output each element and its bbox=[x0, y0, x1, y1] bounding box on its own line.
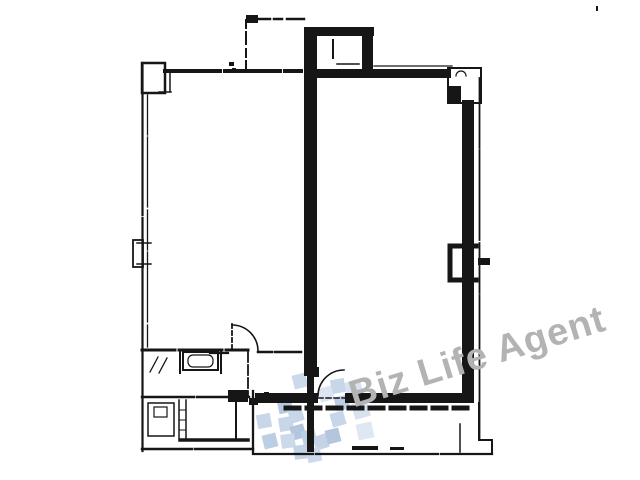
scan-speck bbox=[352, 446, 378, 450]
floor-plan-drawing bbox=[0, 0, 640, 480]
wall-stub bbox=[264, 392, 269, 403]
pilaster-arc bbox=[456, 71, 466, 76]
wall-block bbox=[228, 390, 248, 402]
wall-tick bbox=[478, 258, 490, 265]
toilet-room bbox=[148, 403, 174, 436]
floor-plan-page: Biz Life Agent bbox=[0, 0, 640, 480]
bath-pocket-wall bbox=[179, 400, 186, 438]
center-wall-lower bbox=[307, 376, 314, 452]
balcony-right-step bbox=[479, 403, 492, 454]
scan-speck bbox=[232, 68, 236, 71]
fixture-hatch bbox=[150, 357, 167, 373]
toilet-tank bbox=[154, 407, 167, 417]
wall-stub bbox=[307, 367, 319, 377]
door-arc bbox=[232, 325, 258, 351]
wall-stub bbox=[249, 398, 258, 405]
scan-speck bbox=[229, 62, 234, 66]
wall-corner-post bbox=[142, 63, 165, 93]
center-bearing-wall bbox=[304, 27, 317, 376]
porch-post bbox=[246, 15, 258, 23]
wall-joint-ticks bbox=[137, 243, 151, 264]
right-room-top-wall bbox=[317, 69, 451, 78]
pilaster-fill bbox=[448, 86, 461, 104]
scan-speck bbox=[596, 6, 598, 11]
bath-pocket-rungs bbox=[179, 410, 186, 430]
scan-speck bbox=[390, 447, 404, 450]
sink-bowl bbox=[188, 355, 213, 367]
